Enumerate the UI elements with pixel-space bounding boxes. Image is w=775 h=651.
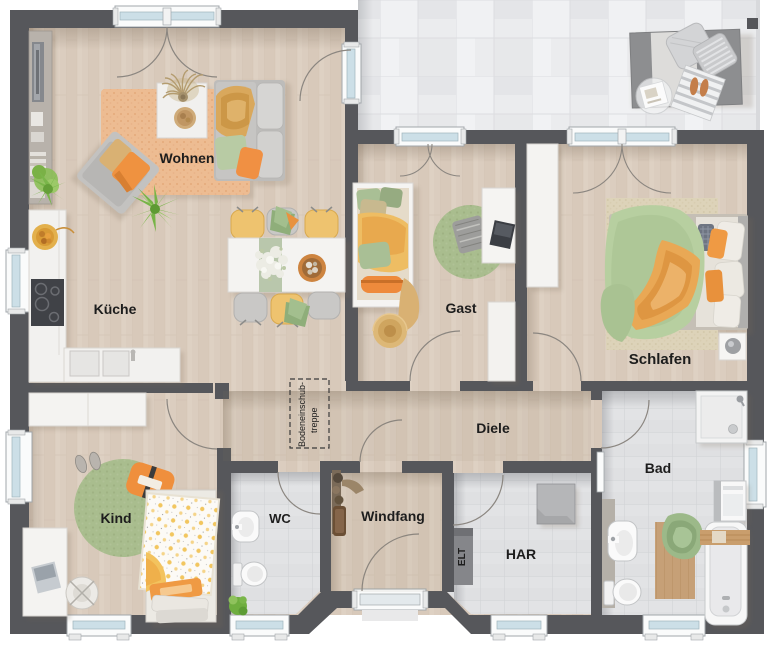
- svg-text:Küche: Küche: [94, 301, 137, 317]
- svg-text:Wohnen: Wohnen: [160, 150, 215, 166]
- svg-text:Bad: Bad: [645, 460, 671, 476]
- svg-text:Gast: Gast: [445, 300, 476, 316]
- svg-text:Kind: Kind: [100, 510, 131, 526]
- svg-text:Schlafen: Schlafen: [629, 351, 692, 368]
- svg-text:HAR: HAR: [506, 546, 536, 562]
- svg-text:WC: WC: [269, 511, 291, 526]
- svg-text:Windfang: Windfang: [361, 508, 425, 524]
- svg-text:ELT: ELT: [457, 548, 468, 566]
- svg-text:Bodeneinschub-: Bodeneinschub-: [297, 382, 307, 447]
- svg-text:Diele: Diele: [476, 420, 510, 436]
- svg-text:treppe: treppe: [309, 407, 319, 433]
